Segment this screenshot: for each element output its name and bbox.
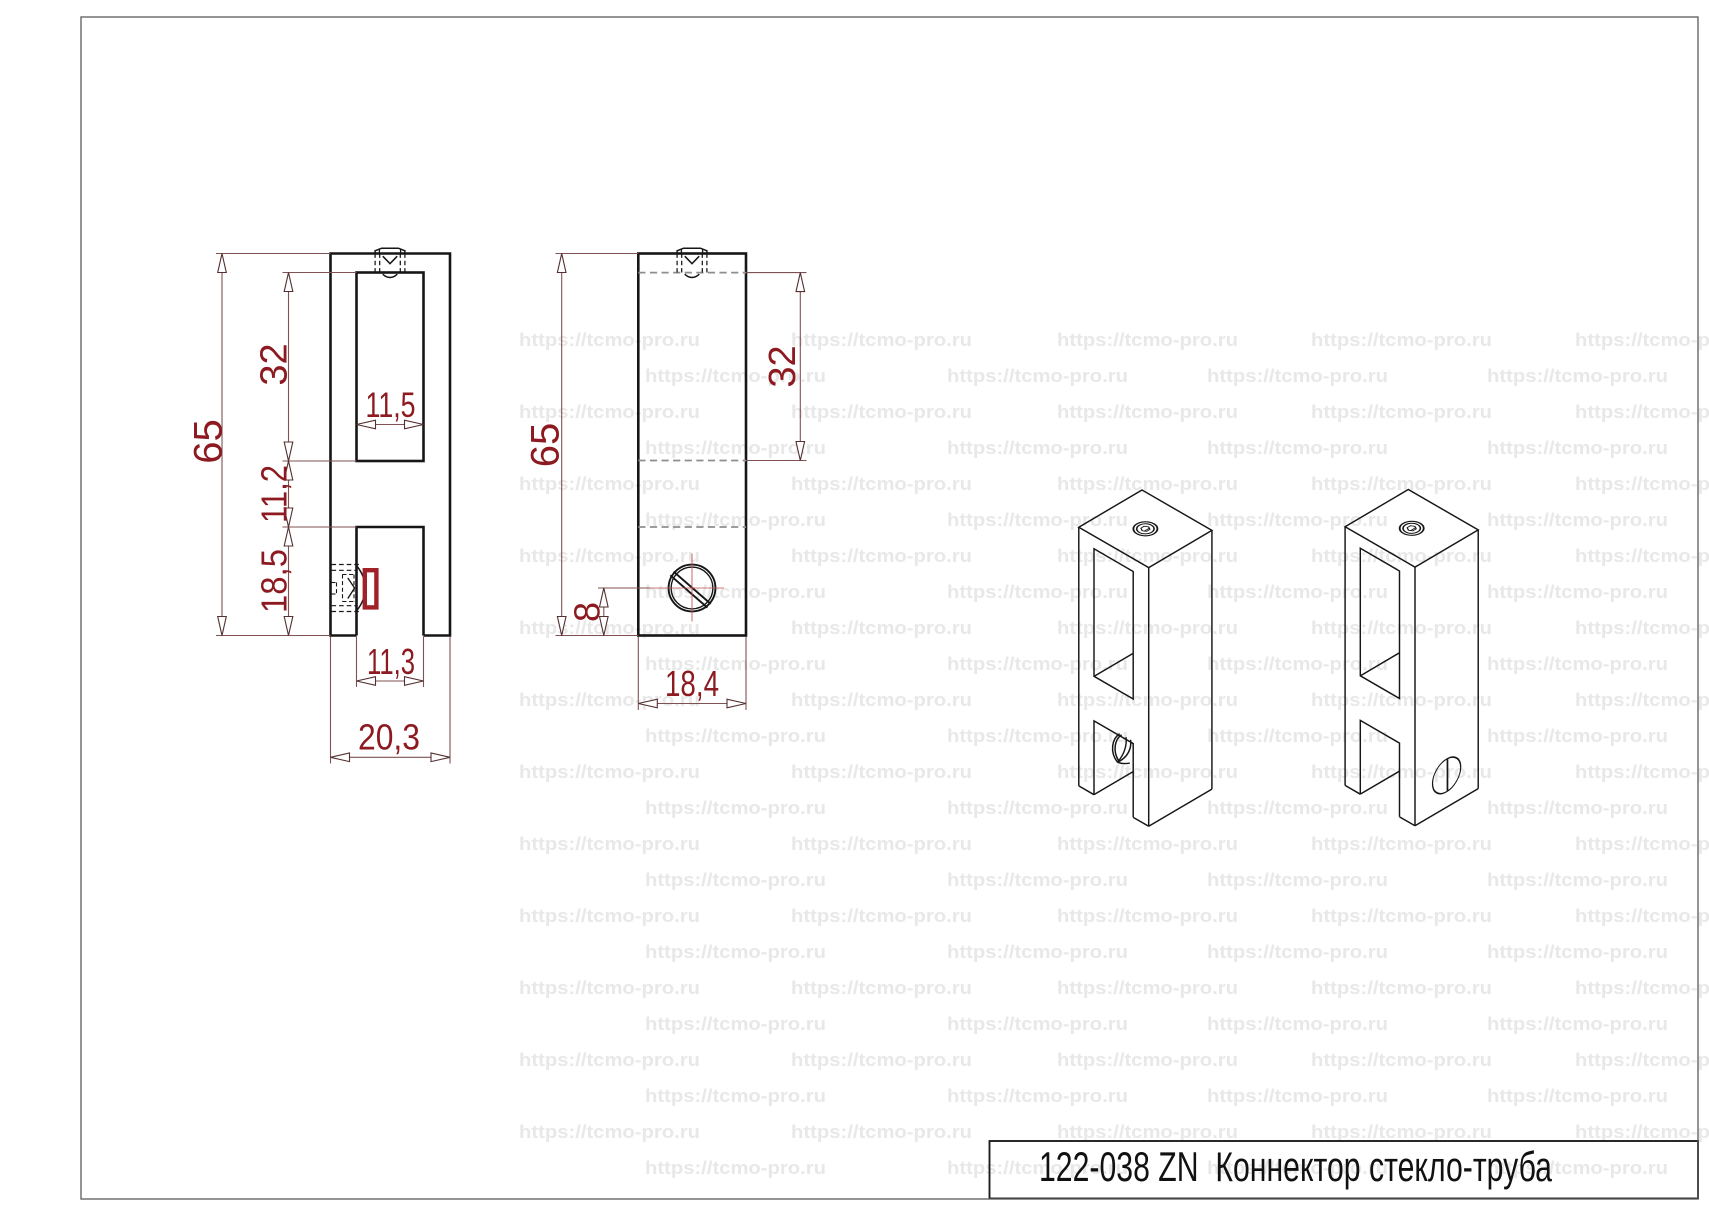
svg-text:122-038 ZN Коннектор стекло-т: 122-038 ZN Коннектор стекло-труба: [1039, 1143, 1552, 1190]
svg-text:11,2: 11,2: [254, 465, 295, 523]
svg-text:11,5: 11,5: [366, 386, 416, 425]
svg-text:11,3: 11,3: [367, 641, 415, 682]
svg-text:65: 65: [524, 423, 568, 468]
svg-text:65: 65: [187, 419, 231, 464]
svg-text:32: 32: [762, 345, 804, 387]
svg-text:8: 8: [567, 602, 608, 622]
svg-text:18,5: 18,5: [254, 549, 295, 613]
svg-text:20,3: 20,3: [358, 717, 420, 758]
svg-text:32: 32: [254, 343, 296, 385]
svg-text:18,4: 18,4: [665, 663, 719, 704]
